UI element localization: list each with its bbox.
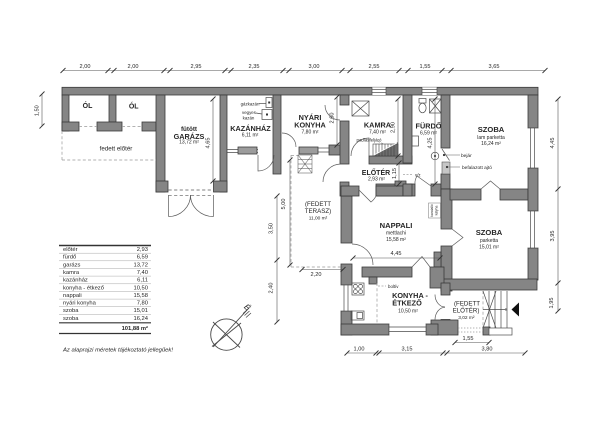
svg-text:KAMRA: KAMRA [364, 120, 392, 129]
svg-text:befalazott ajtó: befalazott ajtó [462, 165, 492, 171]
svg-text:(FEDETT: (FEDETT [305, 201, 331, 208]
svg-text:3,50: 3,50 [269, 223, 275, 234]
svg-text:2,93 m²: 2,93 m² [368, 177, 385, 183]
svg-text:kandalló: kandalló [430, 204, 434, 217]
svg-text:mettlachi: mettlachi [386, 230, 406, 236]
svg-text:2,90: 2,90 [391, 122, 397, 133]
svg-text:16,24 m²: 16,24 m² [481, 141, 501, 147]
svg-text:konyha - étkező: konyha - étkező [63, 285, 104, 291]
svg-text:7,80 m²: 7,80 m² [302, 129, 319, 135]
svg-text:7,40: 7,40 [137, 270, 148, 276]
svg-text:(FEDETT: (FEDETT [454, 301, 480, 308]
svg-text:13,72 m²: 13,72 m² [179, 140, 199, 146]
svg-text:1,50: 1,50 [35, 105, 41, 116]
svg-text:TERASZ): TERASZ) [305, 208, 331, 215]
svg-text:FÜRDŐ: FÜRDŐ [416, 121, 442, 130]
svg-text:6,11: 6,11 [137, 278, 148, 284]
svg-text:lam parketta: lam parketta [477, 135, 505, 141]
svg-text:4,45: 4,45 [391, 251, 402, 257]
svg-text:2,00: 2,00 [128, 64, 139, 70]
svg-text:1,00: 1,00 [354, 347, 365, 353]
svg-text:előtér: előtér [63, 247, 78, 253]
svg-text:vegyes: vegyes [242, 110, 257, 115]
svg-text:3,80: 3,80 [482, 347, 493, 353]
svg-text:nyári konyha: nyári konyha [63, 301, 97, 307]
svg-text:parketta: parketta [480, 238, 498, 244]
svg-text:1,55: 1,55 [463, 336, 474, 342]
svg-text:ÉTKEZŐ: ÉTKEZŐ [392, 299, 422, 308]
svg-text:10,50 m²: 10,50 m² [398, 308, 418, 314]
svg-text:4,45: 4,45 [550, 138, 556, 149]
svg-text:2,60: 2,60 [330, 113, 336, 124]
svg-text:4,65: 4,65 [206, 138, 212, 149]
svg-text:15,58 m²: 15,58 m² [386, 237, 406, 243]
svg-text:fürdő: fürdő [63, 255, 76, 261]
svg-text:5,00: 5,00 [281, 199, 287, 210]
svg-text:6,59: 6,59 [137, 255, 148, 261]
svg-text:SZOBA: SZOBA [478, 125, 505, 134]
svg-text:15,58: 15,58 [133, 293, 148, 299]
svg-text:garázs: garázs [63, 262, 81, 268]
svg-text:nappali: nappali [63, 293, 82, 299]
svg-text:2,40: 2,40 [269, 283, 275, 294]
svg-text:15,01: 15,01 [133, 308, 148, 314]
svg-text:3,00: 3,00 [309, 64, 320, 70]
svg-text:2,00: 2,00 [80, 64, 91, 70]
svg-text:v/z: v/z [415, 173, 421, 178]
svg-text:16,24: 16,24 [133, 316, 148, 322]
svg-text:11,00 m²: 11,00 m² [309, 216, 328, 222]
svg-text:kályha: kályha [435, 205, 439, 215]
svg-text:padlásfeljáró: padlásfeljáró [357, 137, 382, 142]
svg-text:kazán: kazán [243, 115, 255, 120]
svg-text:2,95: 2,95 [191, 64, 202, 70]
svg-text:3,15: 3,15 [402, 347, 413, 353]
svg-text:ELŐTÉR: ELŐTÉR [362, 168, 390, 177]
svg-text:ÓL: ÓL [83, 101, 93, 110]
svg-text:bejár: bejár [461, 153, 472, 159]
svg-text:2,20: 2,20 [311, 272, 322, 278]
svg-text:ELŐTÉR): ELŐTÉR) [453, 308, 480, 315]
svg-text:szoba: szoba [63, 308, 79, 314]
svg-text:NAPPALI: NAPPALI [380, 221, 413, 230]
svg-text:6,11 m²: 6,11 m² [242, 132, 259, 138]
svg-text:kamra: kamra [63, 270, 80, 276]
svg-text:szoba: szoba [63, 316, 79, 322]
svg-text:1,95: 1,95 [549, 298, 555, 309]
svg-text:4,25: 4,25 [428, 138, 434, 149]
svg-text:Az alaprajzi méretek tájékozta: Az alaprajzi méretek tájékoztató jellegű… [62, 348, 173, 354]
svg-text:2,93: 2,93 [137, 247, 148, 253]
svg-text:3,95: 3,95 [550, 231, 556, 242]
svg-text:6,59 m²: 6,59 m² [420, 130, 437, 136]
svg-text:3,65: 3,65 [489, 64, 500, 70]
svg-text:KONYHA: KONYHA [294, 120, 326, 129]
svg-text:13,72: 13,72 [133, 262, 148, 268]
svg-text:3,02 m²: 3,02 m² [458, 315, 475, 321]
svg-text:boltív: boltív [388, 284, 399, 289]
svg-text:SZOBA: SZOBA [476, 228, 503, 237]
svg-text:gázkazán: gázkazán [241, 101, 260, 106]
svg-text:7,80: 7,80 [137, 301, 148, 307]
svg-text:2,35: 2,35 [249, 64, 260, 70]
svg-text:15,01 m²: 15,01 m² [479, 245, 499, 251]
svg-text:1,15: 1,15 [392, 168, 398, 179]
svg-text:10,50: 10,50 [133, 285, 148, 291]
svg-text:ÓL: ÓL [129, 102, 139, 111]
svg-text:kazánház: kazánház [63, 278, 88, 284]
svg-text:1,55: 1,55 [420, 64, 431, 70]
svg-text:7,40 m²: 7,40 m² [369, 129, 386, 135]
svg-text:2,55: 2,55 [369, 64, 380, 70]
svg-text:101,88 m²: 101,88 m² [122, 325, 148, 332]
svg-text:fedett előtér: fedett előtér [100, 146, 133, 153]
